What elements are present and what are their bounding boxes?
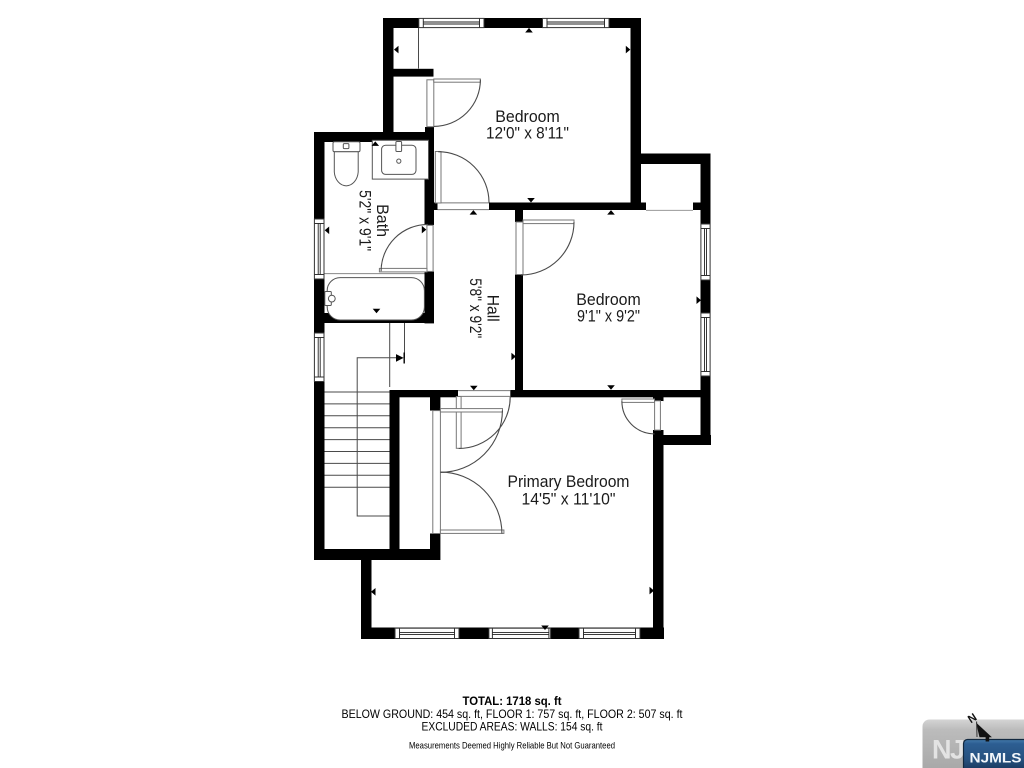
svg-text:12'0" x 8'11": 12'0" x 8'11" (486, 125, 569, 143)
svg-text:9'1" x 9'2": 9'1" x 9'2" (577, 308, 640, 326)
svg-text:Hall: Hall (484, 295, 502, 322)
svg-text:Primary Bedroom: Primary Bedroom (508, 473, 630, 491)
svg-text:EXCLUDED AREAS: WALLS: 154 sq.: EXCLUDED AREAS: WALLS: 154 sq. ft (422, 719, 604, 733)
svg-text:Bedroom: Bedroom (576, 291, 641, 309)
svg-text:5'2" x 9'1": 5'2" x 9'1" (355, 190, 373, 251)
svg-text:Bedroom: Bedroom (495, 108, 560, 126)
svg-text:Measurements Deemed Highly Rel: Measurements Deemed Highly Reliable But … (409, 741, 615, 751)
svg-text:Bath: Bath (373, 204, 391, 237)
svg-text:NJMLS: NJMLS (970, 751, 1022, 766)
svg-text:TOTAL: 1718 sq. ft: TOTAL: 1718 sq. ft (463, 694, 562, 708)
svg-text:14'5" x 11'10": 14'5" x 11'10" (522, 491, 616, 509)
svg-text:5'8" x 9'2": 5'8" x 9'2" (466, 278, 484, 338)
